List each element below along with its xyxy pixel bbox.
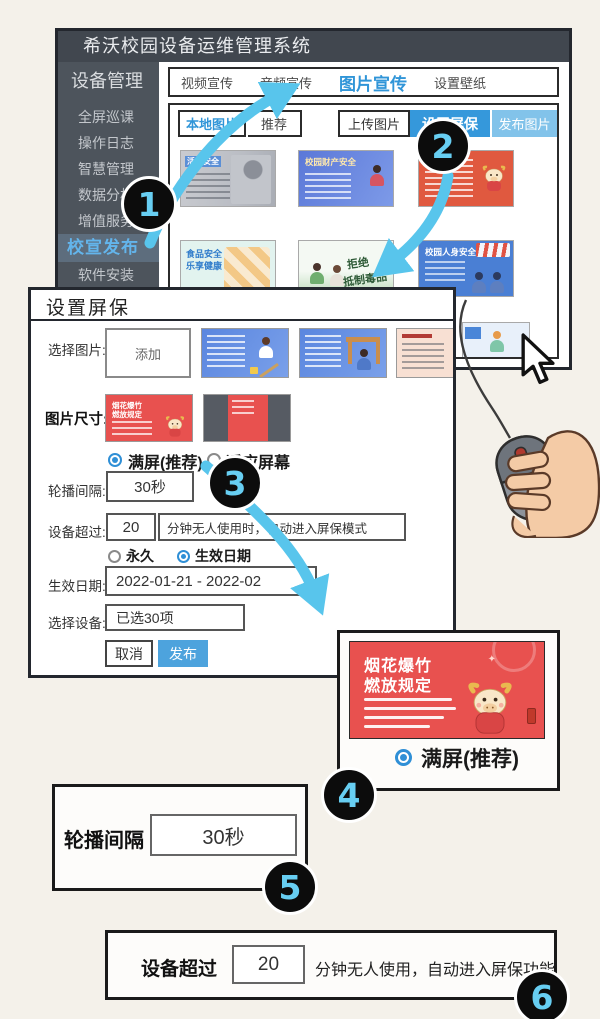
- timeout-zoom-input[interactable]: 20: [232, 945, 305, 984]
- tab-image[interactable]: 图片宣传: [339, 70, 407, 95]
- local-images-button[interactable]: 本地图片: [178, 110, 246, 137]
- thumb-text-lines: [305, 335, 341, 371]
- sidebar-item-logs[interactable]: 操作日志: [58, 130, 159, 156]
- date-label: 生效日期:: [48, 575, 106, 595]
- thumb-text-lines: [186, 173, 230, 201]
- thumb-title: 校园人身安全: [425, 246, 476, 258]
- recommend-button[interactable]: 推荐: [248, 110, 302, 137]
- screensaver-preview-card: 烟花爆竹 燃放规定 ✦: [349, 641, 545, 739]
- fit-center-art: [228, 395, 268, 442]
- mop-art: [259, 363, 279, 378]
- size-preview-fit[interactable]: [203, 394, 291, 442]
- sidebar-item-install[interactable]: 软件安装: [58, 262, 159, 288]
- tutorial-canvas: 希沃校园设备运维管理系统 设备管理 全屏巡课 操作日志 智慧管理 数据分析 增值…: [0, 0, 600, 1019]
- interval-label: 轮播间隔:: [48, 480, 106, 500]
- timeout-input[interactable]: 20: [106, 513, 156, 541]
- step-badge-3: 3: [207, 455, 263, 511]
- tab-audio[interactable]: 音频宣传: [260, 73, 312, 92]
- preview-title-line2: 燃放规定: [112, 409, 142, 420]
- thumb-title: 活动安全: [185, 156, 221, 167]
- dialog-title: 设置屏保: [31, 290, 453, 321]
- thumb-text-lines: [305, 173, 351, 201]
- thumb-text-lines: [425, 261, 465, 281]
- radio-effective-date-label[interactable]: 生效日期: [195, 546, 251, 566]
- thumb-text-lines: [402, 343, 444, 373]
- finger: [507, 493, 550, 511]
- thumb-title: 校园财产安全: [305, 156, 356, 168]
- select-image-label: 选择图片:: [48, 339, 106, 359]
- selected-thumb-cleaning[interactable]: [201, 328, 289, 378]
- interval-input[interactable]: 30秒: [106, 471, 194, 502]
- firecracker-icon: [527, 708, 536, 724]
- desk-leg-art: [376, 342, 380, 364]
- thumb-figure: [489, 331, 505, 353]
- selected-thumb-earthquake[interactable]: [299, 328, 387, 378]
- finger: [507, 451, 549, 473]
- radio-forever-label[interactable]: 永久: [126, 546, 154, 566]
- gallery-thumb-property-safety[interactable]: 校园财产安全: [298, 150, 394, 207]
- cancel-button[interactable]: 取消: [105, 640, 153, 667]
- thumb-title-art: [402, 334, 432, 338]
- thumb-photo: [231, 155, 271, 204]
- tab-bar: 视频宣传 音频宣传 图片宣传 设置壁纸: [168, 67, 559, 97]
- thumb-figure: [258, 337, 274, 359]
- timeout-note: 分钟无人使用时，自动进入屏保模式: [158, 513, 406, 541]
- thumb-title-line2: 乐享健康: [186, 259, 222, 272]
- interval-zoom-label: 轮播间隔: [64, 824, 144, 853]
- radio-fullscreen-zoom-label[interactable]: 满屏(推荐): [421, 743, 519, 773]
- thumb: [512, 516, 536, 537]
- sidebar-item-patrol[interactable]: 全屏巡课: [58, 104, 159, 130]
- size-preview-fullscreen[interactable]: 烟花爆竹 燃放规定: [105, 394, 193, 442]
- ox-mascot-icon: [462, 680, 518, 736]
- interval-zoom-input[interactable]: 30秒: [150, 814, 297, 856]
- thumb-art: [465, 327, 481, 339]
- step-badge-4: 4: [321, 767, 377, 823]
- radio-fullscreen-zoom[interactable]: [395, 749, 412, 766]
- card-deco-circle: [492, 641, 536, 672]
- date-range-input[interactable]: 2022-01-21 - 2022-02: [105, 566, 317, 596]
- desk-leg-art: [348, 342, 352, 364]
- step-badge-5: 5: [262, 859, 318, 915]
- thumb-food-art: [224, 247, 270, 291]
- radio-fullscreen-label[interactable]: 满屏(推荐): [128, 449, 203, 473]
- thumb-figure: [369, 165, 385, 187]
- add-image-button[interactable]: 添加: [105, 328, 191, 378]
- thumb-figure: [489, 272, 505, 294]
- selected-thumb-holiday[interactable]: [396, 328, 456, 378]
- radio-forever[interactable]: [108, 550, 121, 563]
- timeout-label: 设备超过:: [48, 521, 106, 541]
- callout-fullscreen-box: 烟花爆竹 燃放规定 ✦ 满屏(推荐): [337, 630, 560, 791]
- timeout-zoom-note: 分钟无人使用，自动进入屏保功能: [315, 956, 555, 980]
- thumb-figure: [309, 263, 325, 285]
- step-badge-6: 6: [514, 969, 570, 1019]
- radio-effective-date[interactable]: [177, 550, 190, 563]
- step-badge-1: 1: [121, 176, 177, 232]
- step-badge-2: 2: [415, 118, 471, 174]
- sidebar-item-publicity[interactable]: 校宣发布: [58, 234, 159, 262]
- card-bullet-lines: [364, 698, 454, 734]
- gallery-thumb-activity-safety[interactable]: 活动安全: [180, 150, 276, 207]
- radio-fullscreen[interactable]: [108, 453, 122, 467]
- thumb-text-lines: [112, 421, 152, 439]
- tab-video[interactable]: 视频宣传: [181, 73, 233, 92]
- tab-wallpaper[interactable]: 设置壁纸: [434, 73, 486, 92]
- window-title: 希沃校园设备运维管理系统: [58, 31, 569, 62]
- upload-image-button[interactable]: 上传图片: [338, 110, 410, 137]
- card-title-line2: 燃放规定: [364, 672, 432, 696]
- sidebar-header: 设备管理: [58, 62, 159, 100]
- bucket-art: [250, 367, 258, 374]
- thumb-figure: [356, 349, 372, 371]
- devices-label: 选择设备:: [48, 612, 106, 632]
- image-size-label: 图片尺寸:: [45, 408, 108, 429]
- thumb-flags-art: [476, 243, 510, 257]
- gallery-thumb-partial[interactable]: [462, 322, 530, 359]
- thumb-text-lines: [207, 335, 245, 371]
- finger: [506, 472, 551, 490]
- publish-images-button[interactable]: 发布图片: [492, 110, 557, 137]
- publish-button[interactable]: 发布: [158, 640, 208, 667]
- ox-mascot-icon: [479, 164, 509, 194]
- ox-mascot-icon: [163, 415, 187, 439]
- callout-timeout-box: 设备超过 20 分钟无人使用，自动进入屏保功能: [105, 930, 557, 1000]
- thumb-figure: [471, 272, 487, 294]
- devices-input[interactable]: 已选30项: [105, 604, 245, 631]
- timeout-zoom-label: 设备超过: [141, 954, 217, 981]
